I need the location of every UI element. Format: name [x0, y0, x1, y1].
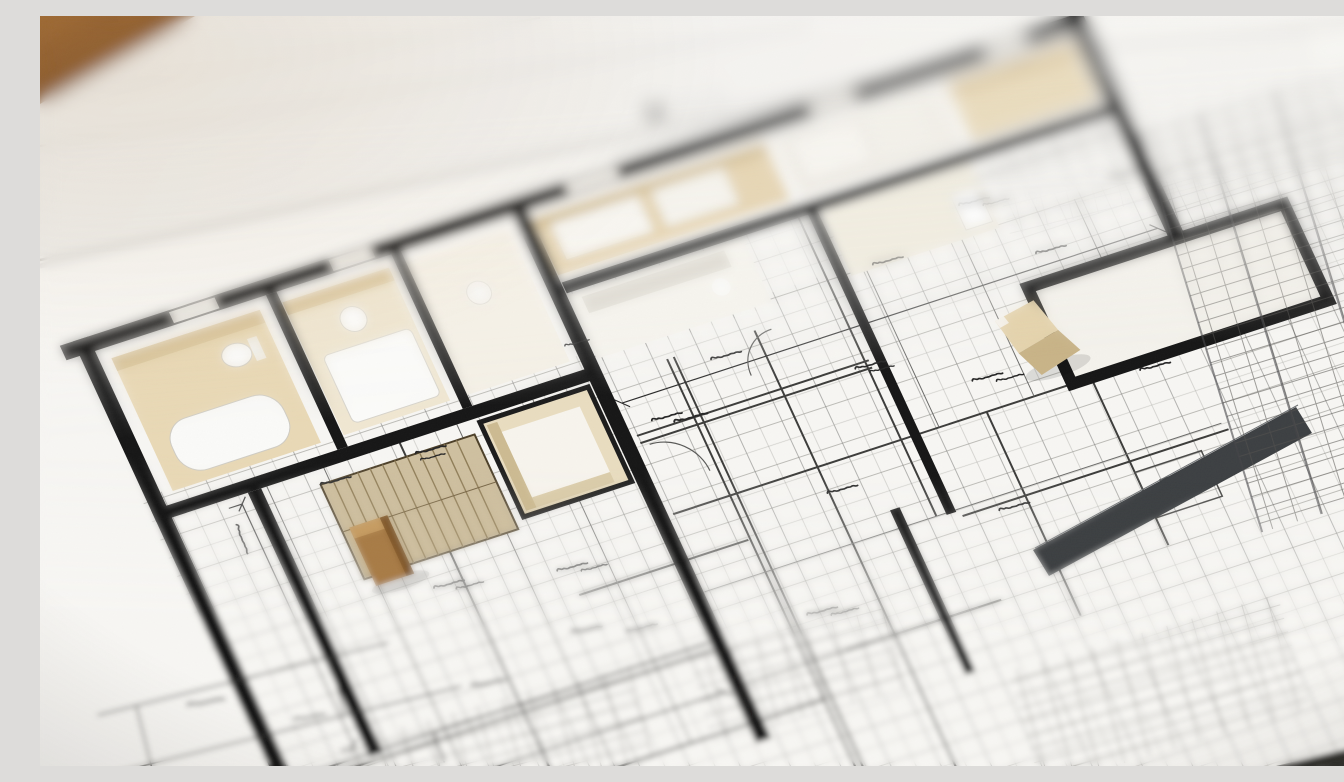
photo-of-blueprint: Architectural floor-plan blueprint with … — [40, 16, 1344, 766]
vignette — [40, 16, 1344, 766]
blueprint-scene — [40, 16, 1344, 766]
